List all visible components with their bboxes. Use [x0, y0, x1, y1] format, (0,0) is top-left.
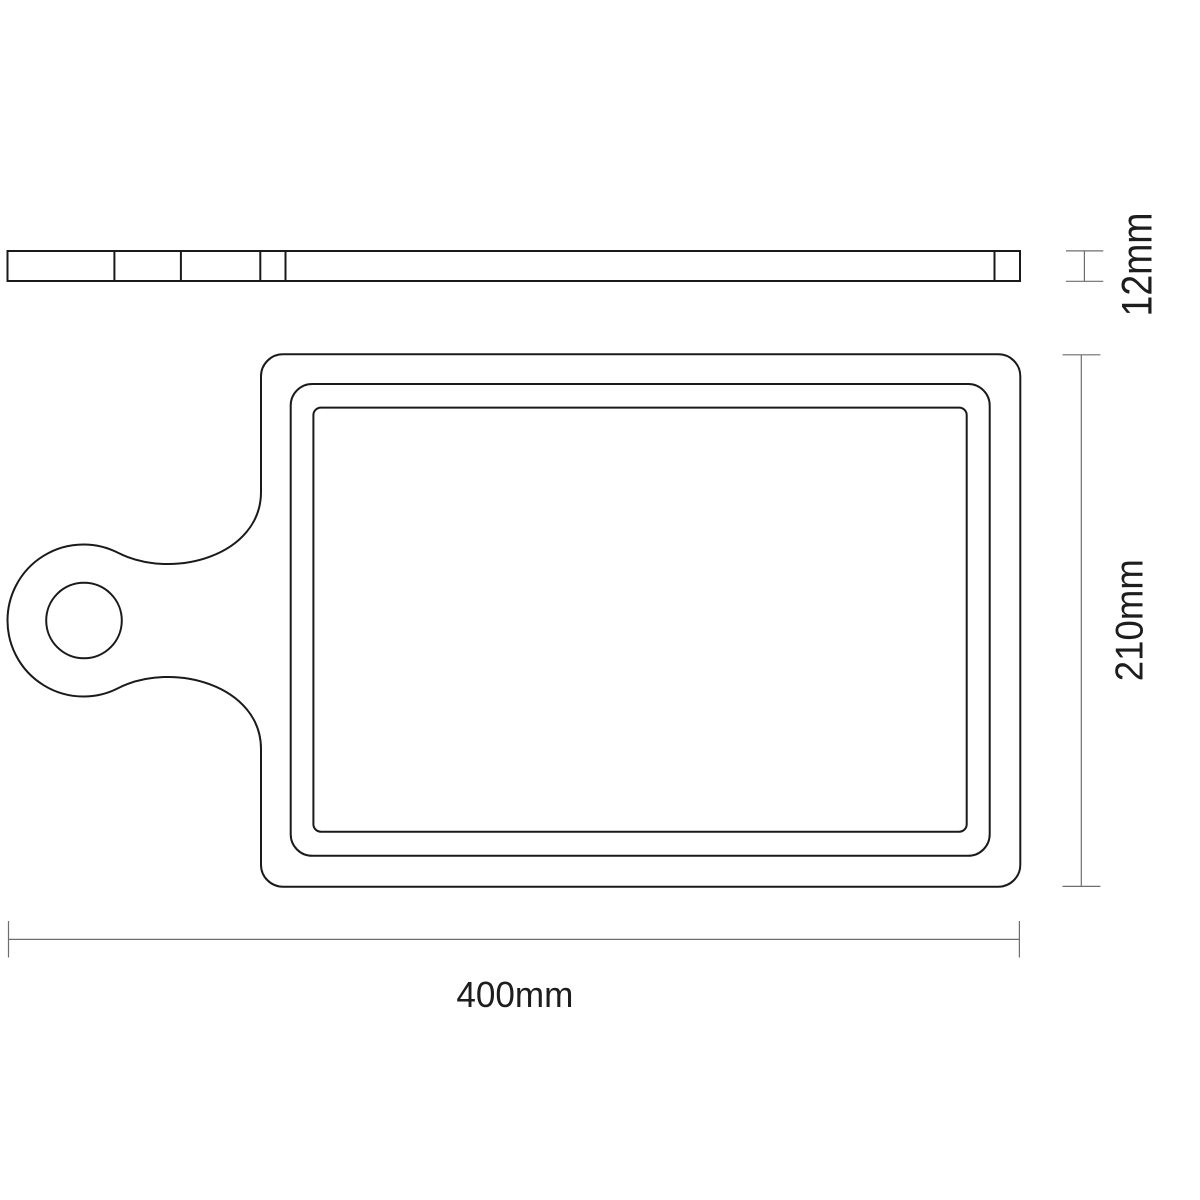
svg-text:12mm: 12mm — [1115, 213, 1162, 317]
svg-text:400mm: 400mm — [456, 974, 573, 1015]
svg-text:210mm: 210mm — [1109, 559, 1152, 681]
